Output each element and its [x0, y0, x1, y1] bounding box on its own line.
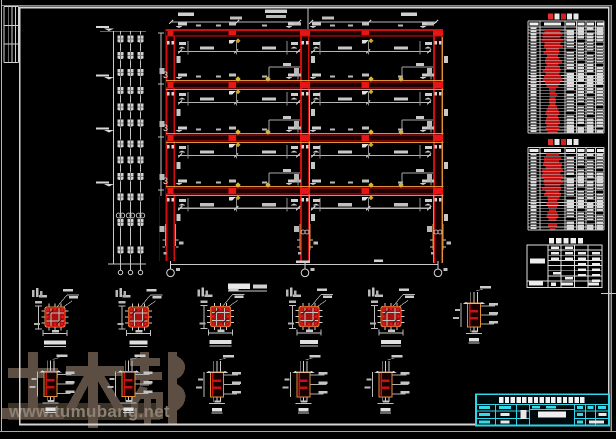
svg-text:3: 3 [163, 70, 168, 80]
svg-text:3: 3 [163, 123, 168, 133]
svg-text:www.tumubang.net: www.tumubang.net [8, 402, 170, 421]
svg-text:3: 3 [163, 176, 168, 186]
